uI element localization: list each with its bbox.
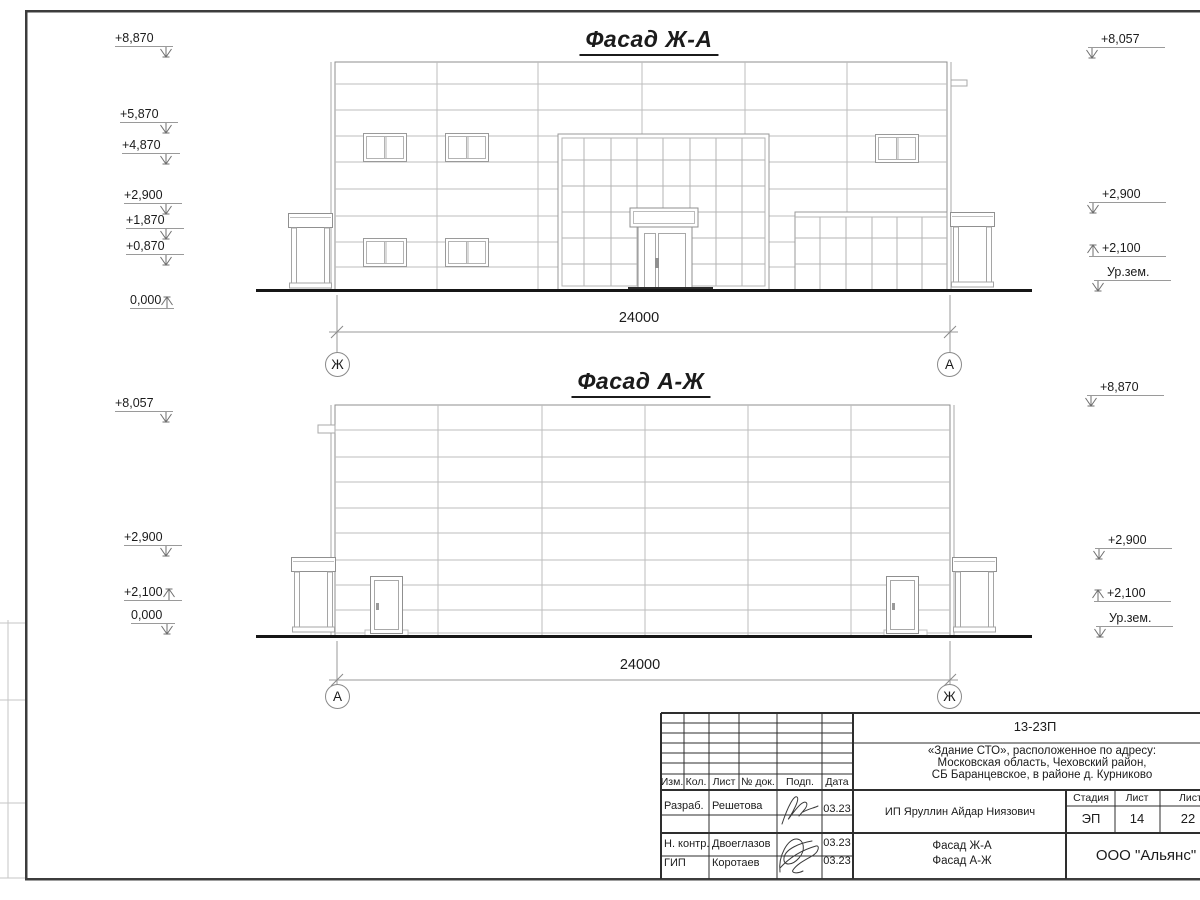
porch bbox=[292, 558, 336, 633]
facade1-title: Фасад Ж-А bbox=[579, 26, 718, 56]
elevation-label: +1,870 bbox=[126, 213, 184, 229]
signature-reshetova bbox=[782, 797, 818, 824]
elevation-label: +2,900 bbox=[1089, 187, 1166, 203]
axis-bubble-zh: Ж bbox=[937, 684, 962, 709]
window-band bbox=[795, 212, 947, 290]
elevation-label: +2,100 bbox=[1089, 241, 1166, 257]
col-podp: Подп. bbox=[786, 776, 814, 788]
elevation-label: +2,900 bbox=[124, 530, 182, 546]
elevation-label: +8,870 bbox=[1087, 380, 1164, 396]
row-date: 03.23 bbox=[823, 803, 851, 815]
elevation-label: +8,057 bbox=[1088, 32, 1165, 48]
sheets-value: 22 bbox=[1181, 811, 1195, 826]
stage-value: ЭП bbox=[1082, 811, 1101, 826]
window bbox=[876, 135, 919, 163]
ground-level-label: Ур.зем. bbox=[1096, 611, 1173, 627]
window bbox=[364, 134, 407, 162]
blueprint-sheet: Фасад Ж-А Фасад А-Ж +8,870 +5,870 +4,870… bbox=[0, 0, 1200, 900]
project-address-line2: Московская область, Чеховский район, bbox=[938, 757, 1147, 769]
porch bbox=[289, 214, 333, 289]
row-name: Коротаев bbox=[712, 857, 760, 869]
facade2-title: Фасад А-Ж bbox=[571, 368, 710, 398]
col-kol: Кол. bbox=[686, 776, 707, 788]
client-name: ИП Яруллин Айдар Ниязович bbox=[885, 806, 1035, 818]
col-ndok: № док. bbox=[741, 776, 775, 788]
drawing-title-line2: Фасад А-Ж bbox=[932, 855, 991, 867]
dimension-24000: 24000 bbox=[620, 657, 660, 673]
row-name: Решетова bbox=[712, 800, 762, 812]
elevation-label: +4,870 bbox=[122, 138, 180, 154]
ground-level-label: Ур.зем. bbox=[1094, 265, 1171, 281]
stage-label: Стадия bbox=[1073, 792, 1109, 804]
elevation-label: +2,100 bbox=[1094, 586, 1171, 602]
facade-a-zh-drawing bbox=[256, 405, 1032, 638]
row-date: 03.23 bbox=[823, 837, 851, 849]
row-role: Разраб. bbox=[664, 800, 704, 812]
facade-zh-a-drawing bbox=[256, 62, 1032, 292]
elevation-label: +2,900 bbox=[1095, 533, 1172, 549]
axis-bubble-zh: Ж bbox=[325, 352, 350, 377]
window bbox=[446, 239, 489, 267]
ground-line bbox=[256, 635, 1032, 638]
project-address-line1: «Здание СТО», расположенное по адресу: bbox=[928, 745, 1156, 757]
sheet-value: 14 bbox=[1130, 811, 1144, 826]
elevation-label: 0,000 bbox=[131, 608, 175, 624]
ground-line bbox=[256, 289, 1032, 292]
project-address-line3: СБ Баранцевское, в районе д. Курниково bbox=[932, 769, 1152, 781]
col-list: Лист bbox=[713, 776, 736, 788]
roof-tab bbox=[318, 425, 335, 433]
row-name: Двоеглазов bbox=[712, 838, 770, 850]
door bbox=[371, 577, 403, 634]
elevation-label: +2,900 bbox=[124, 188, 182, 204]
dimension-24000: 24000 bbox=[619, 310, 659, 326]
elevation-label: +5,870 bbox=[120, 107, 178, 123]
sheet-label: Лист bbox=[1126, 792, 1149, 804]
elevation-label: +0,870 bbox=[126, 239, 184, 255]
elevation-label: +8,057 bbox=[115, 396, 173, 412]
col-data: Дата bbox=[825, 776, 848, 788]
row-date: 03.23 bbox=[823, 855, 851, 867]
company-name: ООО "Альянс" bbox=[1096, 847, 1196, 864]
porch bbox=[953, 558, 997, 633]
axis-bubble-a: А bbox=[325, 684, 350, 709]
window bbox=[446, 134, 489, 162]
col-izm: Изм. bbox=[661, 776, 684, 788]
axis-bubble-a: А bbox=[937, 352, 962, 377]
project-code: 13-23П bbox=[1014, 719, 1057, 734]
sheets-label: Листов bbox=[1179, 792, 1200, 804]
elevation-label: +2,100 bbox=[124, 585, 182, 601]
window bbox=[364, 239, 407, 267]
row-role: Н. контр. bbox=[664, 838, 709, 850]
elevation-label: +8,870 bbox=[115, 31, 173, 47]
porch bbox=[951, 213, 995, 288]
drawing-title-line1: Фасад Ж-А bbox=[932, 840, 991, 852]
roof-tab bbox=[951, 80, 967, 86]
door bbox=[887, 577, 919, 634]
elevation-label: 0,000 bbox=[130, 293, 174, 309]
row-role: ГИП bbox=[664, 857, 686, 869]
